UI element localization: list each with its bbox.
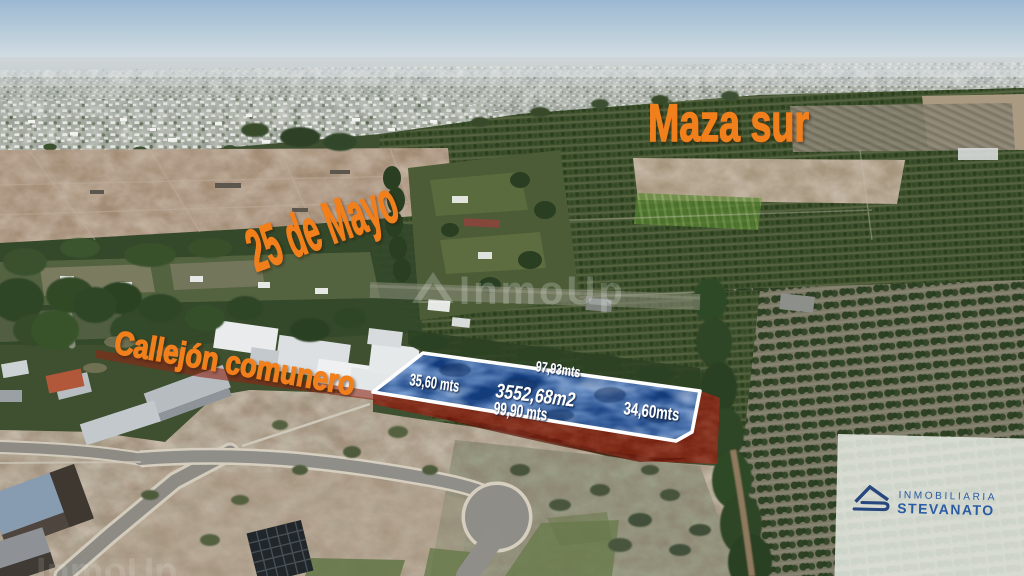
svg-text:Maza sur: Maza sur: [648, 93, 809, 153]
svg-text:STEVANATO: STEVANATO: [897, 500, 995, 518]
svg-text:InmoUp: InmoUp: [36, 551, 177, 576]
svg-text:InmoUp: InmoUp: [459, 269, 626, 313]
